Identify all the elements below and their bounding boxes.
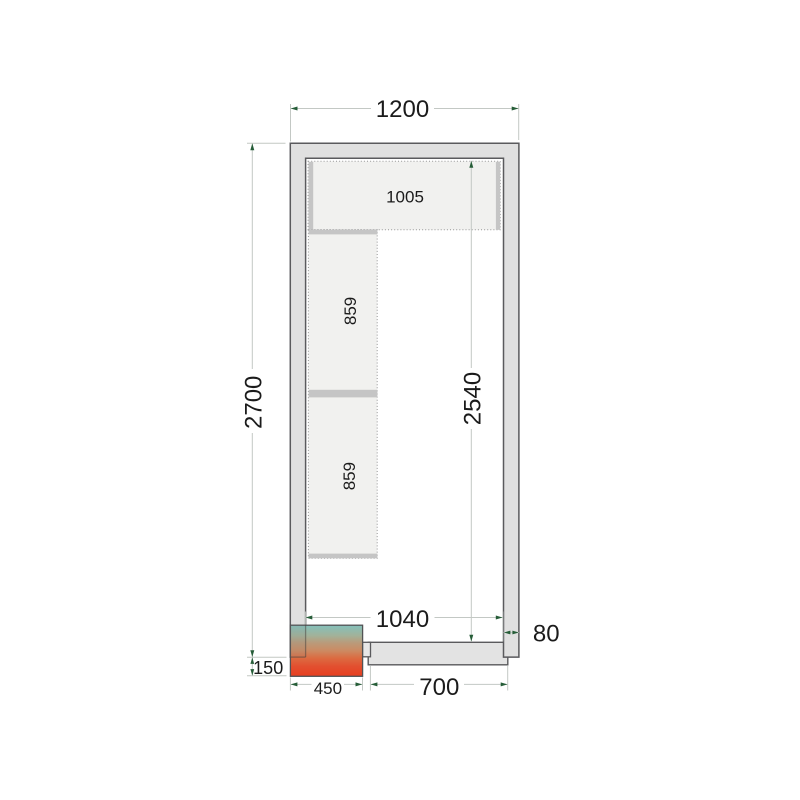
svg-text:150: 150 (253, 658, 283, 678)
svg-text:2700: 2700 (240, 376, 267, 429)
svg-text:859: 859 (340, 462, 359, 490)
svg-text:1200: 1200 (376, 96, 429, 123)
svg-text:1040: 1040 (376, 606, 429, 633)
svg-text:2540: 2540 (459, 372, 486, 425)
svg-text:700: 700 (419, 674, 459, 701)
svg-text:1005: 1005 (386, 188, 424, 207)
svg-text:450: 450 (314, 679, 342, 698)
svg-text:80: 80 (533, 620, 560, 647)
svg-text:859: 859 (341, 297, 360, 325)
